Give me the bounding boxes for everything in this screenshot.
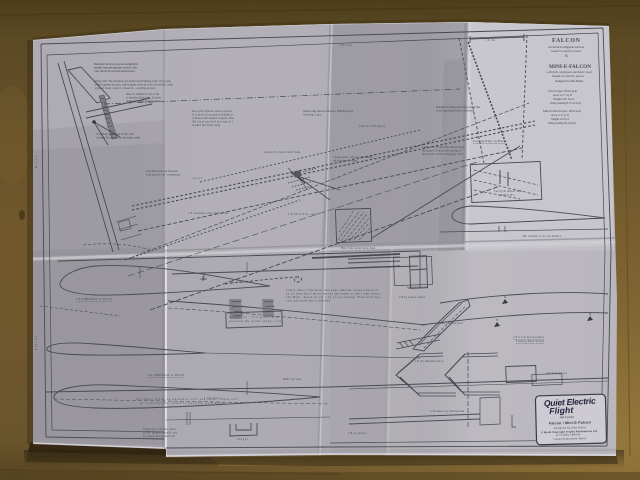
svg-text:W2 DIHEDRAL at TIP rib: W2 DIHEDRAL at TIP rib [148,374,185,377]
svg-text:Join the 4 TE pieces: Join the 4 TE pieces [359,125,385,128]
svg-text:soarer for electric power: soarer for electric power [551,49,582,53]
svg-text:+: + [202,278,204,282]
svg-text:Tailplane / fin grain dirn: Tailplane / fin grain dirn [229,316,280,319]
svg-text:washes the front wing: washes the front wing [192,124,221,127]
svg-text:rib & pieces of sheet: rib & pieces of sheet [333,160,357,163]
svg-text:1/8 PLY W1: 1/8 PLY W1 [498,194,515,197]
svg-text:1/16 sheet top and bottom: 1/16 sheet top and bottom [430,410,465,413]
svg-text:hinges: hinges [237,438,248,441]
svg-text:be glued and pinned flat: be glued and pinned flat [143,435,175,438]
svg-text:spars: spars [193,177,202,180]
svg-text:1/8 sq spruce radius: 1/8 sq spruce radius [399,296,425,299]
svg-text:Wing loading 8.75 oz/sq ft: Wing loading 8.75 oz/sq ft [550,101,581,105]
svg-text:Flight: Flight [549,405,575,416]
svg-text:2 in grain runs: 2 in grain runs [407,286,427,289]
svg-text:Fus side view: Fus side view [229,281,251,284]
svg-text:sanded and lightly glued toget: sanded and lightly glued together [126,100,160,103]
svg-text:1/8 sq spruce: 1/8 sq spruce [348,432,367,435]
svg-text:Hard line grain direction: Hard line grain direction [341,247,376,250]
svg-text:&: & [565,54,568,58]
svg-text:1/8 balsa T.E. stock: 1/8 balsa T.E. stock [288,213,319,216]
svg-text:MW PLANS: MW PLANS [560,415,574,419]
svg-text:FALCON: FALCON [552,38,581,44]
svg-text:1/8 DIHEDRAL at TIP rib: 1/8 DIHEDRAL at TIP rib [76,298,113,301]
svg-text:edge of sheet round to blend i: edge of sheet round to blend in - sandin… [95,87,156,90]
svg-text:Mini fus side: Mini fus side [283,378,302,381]
svg-text:BC lengths to be cut finally: BC lengths to be cut finally [523,235,562,238]
svg-text:in 1/16 overlaps glued in pos: in 1/16 overlaps glued in position with … [140,402,226,405]
svg-text:position the grain along a rib: position the grain along a rib [229,320,282,323]
svg-text:Cut these plans on guidance on: Cut these plans on guidance onto the she… [136,398,238,401]
svg-text:Notes: Notes [35,156,38,168]
svg-text:is moving from body to shoulde: is moving from body to shoulder [436,110,474,113]
svg-text:Wing washout here: Wing washout here [438,322,464,325]
svg-text:main ends actual wingspars. T: main ends actual wingspars. This [422,153,463,156]
svg-text:wing, that the fin can be moun: wing, that the fin can be mounted in pla… [94,70,136,73]
svg-text:16 ins: 16 ins [486,39,495,42]
svg-text:Falcon: Falcon [35,335,38,350]
svg-text:Trailing Edge Stocks: Trailing Edge Stocks [516,340,544,343]
svg-text:1/8 leading edge W/S at tip: 1/8 leading edge W/S at tip [188,212,229,215]
svg-text:Wing loading 10 oz/sq ft: Wing loading 10 oz/sq ft [548,121,576,125]
svg-text:1/16 sheet: 1/16 sheet [204,397,220,400]
svg-text:Centre rib: brace built from: Centre rib: brace built from [264,151,301,154]
svg-text:SP/xxx: SP/xxx [340,44,353,47]
svg-text:a fin area of core / continuo: a fin area of core / continuous [146,174,180,177]
svg-text:Designed by John Emms: Designed by John Emms [555,79,584,83]
svg-text:Fus'lg & Wheel Seat: Fus'lg & Wheel Seat [494,190,522,193]
svg-text:over gift travel this is insta: over gift travel this is installed [286,300,331,303]
svg-text:leading edge: leading edge [303,114,322,117]
svg-text:Leading Edge on Plans: Leading Edge on Plans [473,139,506,143]
svg-text:A single Fin attached to the w: A single Fin attached to the wings small [96,137,140,140]
svg-text:model for electric power: model for electric power [552,74,585,78]
svg-text:Packing pieces: Packing pieces [547,372,567,375]
svg-text:1/8 x 1/4 Spruce/balsa: 1/8 x 1/4 Spruce/balsa [513,336,545,339]
svg-text:1/8 ply dihedral brace: 1/8 ply dihedral brace [415,360,444,363]
